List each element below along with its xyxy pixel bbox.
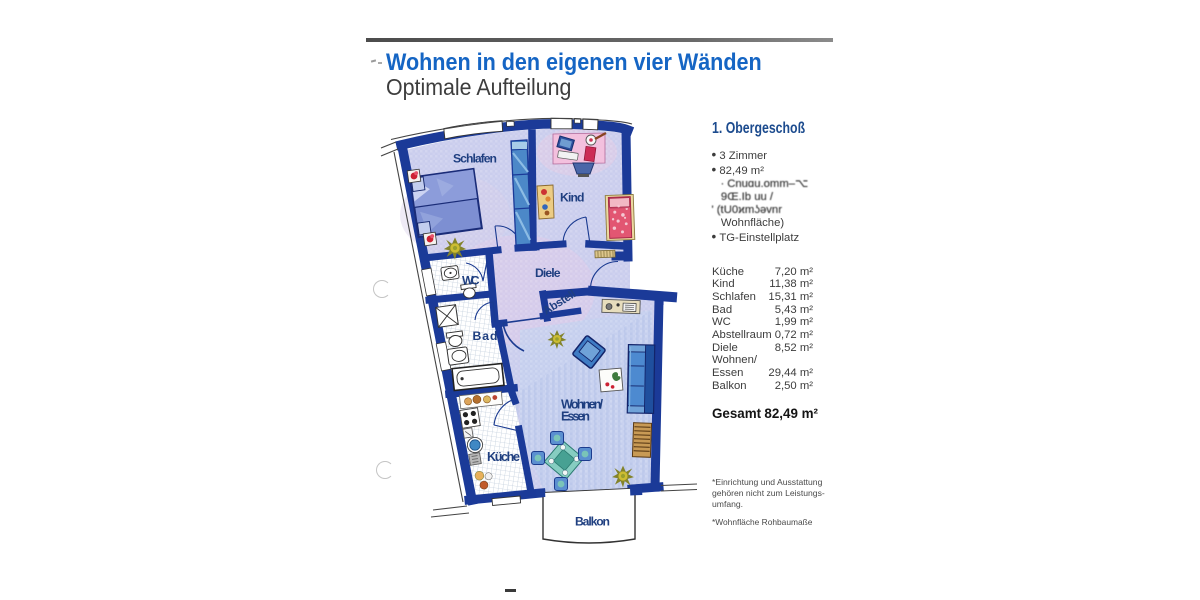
svg-text:WC: WC: [462, 274, 480, 288]
svg-text:Küche: Küche: [487, 450, 520, 464]
svg-text:Diele: Diele: [535, 266, 561, 280]
svg-text:Balkon: Balkon: [575, 515, 610, 529]
svg-text:Essen: Essen: [561, 410, 590, 424]
svg-text:Bad: Bad: [473, 329, 498, 343]
svg-text:Kind: Kind: [560, 191, 585, 205]
svg-text:Schlafen: Schlafen: [453, 152, 497, 166]
